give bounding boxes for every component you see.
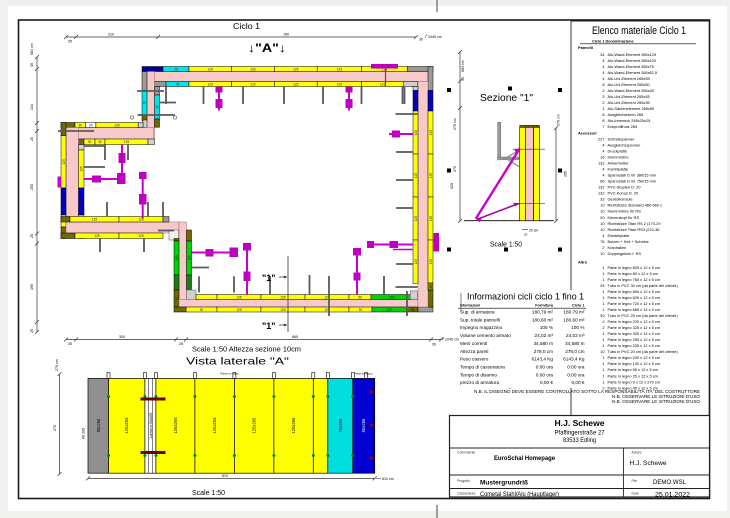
- svg-text:6143,4 Kg: 6143,4 Kg: [532, 357, 554, 362]
- svg-text:Ausgleichsspanner: Ausgleichsspanner: [608, 143, 642, 148]
- svg-text:1: 1: [602, 271, 604, 276]
- svg-text:Volume cemento armato: Volume cemento armato: [460, 333, 511, 338]
- svg-text:780: 780: [283, 33, 289, 37]
- svg-text:125: 125: [337, 82, 343, 86]
- svg-text:Lamiera 30x265: Lamiera 30x265: [149, 413, 153, 439]
- svg-text:24,02 m³: 24,02 m³: [535, 333, 554, 338]
- svg-text:180,79 m²: 180,79 m²: [563, 310, 585, 315]
- svg-text:195: 195: [30, 284, 34, 290]
- svg-text:100: 100: [429, 98, 433, 104]
- svg-text:0:00 ora: 0:00 ora: [567, 372, 585, 377]
- svg-text:0,00 €: 0,00 €: [571, 380, 584, 385]
- svg-text:270 cm: 270 cm: [557, 114, 561, 126]
- svg-text:55: 55: [411, 308, 415, 312]
- svg-text:125: 125: [414, 130, 418, 136]
- svg-text:125x265: 125x265: [291, 417, 296, 434]
- svg-text:125: 125: [337, 67, 343, 71]
- svg-text:DEMO.WSL: DEMO.WSL: [653, 479, 686, 486]
- svg-text:125: 125: [208, 67, 214, 71]
- svg-text:Alu-Uni-Element 265x50: Alu-Uni-Element 265x50: [608, 82, 651, 87]
- svg-text:Sup. totale pannelli: Sup. totale pannelli: [460, 317, 500, 322]
- svg-text:Parte in legno 130 x 12 x 5 cm: Parte in legno 130 x 12 x 5 cm: [608, 361, 661, 366]
- svg-text:629: 629: [450, 183, 454, 189]
- svg-text:810 cm: 810 cm: [382, 477, 394, 481]
- svg-text:125x265: 125x265: [252, 417, 257, 434]
- svg-text:Parte in legno 9 x 12 x 270 cm: Parte in legno 9 x 12 x 270 cm: [608, 379, 661, 384]
- svg-text:125x265: 125x265: [124, 417, 129, 434]
- svg-text:125: 125: [414, 173, 418, 179]
- svg-text:132: 132: [598, 191, 605, 196]
- svg-text:Alu-Uni-Element 265x35: Alu-Uni-Element 265x35: [608, 100, 650, 105]
- svg-text:0:00 ora: 0:00 ora: [536, 372, 554, 377]
- svg-text:Tubo in PVC 25 cm (da parte de: Tubo in PVC 25 cm (da parte del cliente): [608, 313, 679, 318]
- svg-text:Ciclo 1: Ciclo 1: [572, 304, 584, 308]
- svg-text:16: 16: [600, 155, 604, 160]
- svg-text:Tempo di disarmo: Tempo di disarmo: [460, 372, 497, 377]
- svg-text:Mustergrundriß: Mustergrundriß: [480, 480, 528, 487]
- svg-text:Vista laterale "A": Vista laterale "A": [186, 356, 289, 368]
- svg-text:180,60 m²: 180,60 m²: [563, 317, 585, 322]
- svg-text:25: 25: [89, 123, 93, 127]
- svg-text:"1": "1": [262, 321, 276, 331]
- svg-text:Tempo di casseratura: Tempo di casseratura: [460, 365, 505, 370]
- svg-text:684 cm: 684 cm: [461, 60, 465, 72]
- svg-text:Parte in legno 325 x 12 x 5 cm: Parte in legno 325 x 12 x 5 cm: [608, 325, 661, 330]
- svg-text:125: 125: [429, 259, 433, 265]
- svg-text:Impegno magazzino: Impegno magazzino: [460, 325, 503, 330]
- svg-text:1: 1: [602, 343, 604, 348]
- svg-text:2: 2: [602, 325, 604, 330]
- svg-text:EuroSchal Homepage: EuroSchal Homepage: [494, 456, 556, 462]
- svg-text:H.J. Schewe: H.J. Schewe: [555, 419, 606, 428]
- svg-text:270 cm: 270 cm: [453, 118, 457, 130]
- svg-text:125: 125: [236, 295, 242, 299]
- svg-text:25: 25: [30, 234, 34, 238]
- svg-text:Parte in legno 825 x 12 x 5 cm: Parte in legno 825 x 12 x 5 cm: [608, 265, 661, 270]
- svg-text:Scale 1:50 Altezza sezione 1: Scale 1:50 Altezza sezione 10cm: [192, 345, 301, 354]
- svg-text:278,0 cm: 278,0 cm: [565, 349, 584, 354]
- svg-text:278,0 cm: 278,0 cm: [534, 349, 553, 354]
- svg-text:Alu-Wand-Element 265x125: Alu-Wand-Element 265x125: [608, 52, 657, 57]
- svg-text:Richtstütze Titan RS 2 (170-29: Richtstütze Titan RS 2 (170-29: [608, 221, 661, 226]
- svg-text:270: 270: [53, 425, 57, 431]
- svg-text:20: 20: [30, 137, 34, 141]
- svg-text:25: 25: [68, 342, 72, 346]
- svg-text:Alt 265: Alt 265: [82, 428, 86, 439]
- svg-text:1: 1: [602, 277, 604, 282]
- svg-text:Bolzen + Keil + Scheibe: Bolzen + Keil + Scheibe: [608, 239, 649, 244]
- svg-text:2: 2: [602, 88, 604, 93]
- svg-text:1: 1: [602, 361, 604, 366]
- svg-text:6143,4 Kg: 6143,4 Kg: [563, 357, 585, 362]
- svg-text:50: 50: [358, 295, 362, 299]
- svg-text:60: 60: [62, 200, 66, 204]
- svg-text:Parte in legno 255 x 12 x 5 cm: Parte in legno 255 x 12 x 5 cm: [608, 337, 661, 342]
- svg-text:1: 1: [602, 367, 604, 372]
- svg-text:prezzo di armatura: prezzo di armatura: [460, 380, 499, 385]
- svg-text:134: 134: [30, 104, 34, 110]
- svg-text:Alu-Wand-Element 265x75: Alu-Wand-Element 265x75: [608, 64, 654, 69]
- svg-text:Richtstütze Titan RS3 (210-36: Richtstütze Titan RS3 (210-36: [608, 227, 660, 232]
- svg-text:Parte in legno 300 x 12 x 5 cm: Parte in legno 300 x 12 x 5 cm: [608, 331, 661, 336]
- svg-text:Alu-Säulenelement 265x50: Alu-Säulenelement 265x50: [608, 106, 656, 111]
- svg-text:125: 125: [414, 216, 418, 222]
- svg-text:125x265: 125x265: [173, 417, 178, 434]
- svg-text:30: 30: [419, 38, 423, 42]
- svg-text:125: 125: [380, 82, 386, 86]
- svg-text:Data: Data: [632, 492, 639, 496]
- svg-text:Einstellplatte: Einstellplatte: [608, 233, 630, 238]
- svg-text:Pfaffingerstraße 27: Pfaffingerstraße 27: [555, 430, 605, 437]
- svg-text:File: File: [632, 479, 638, 483]
- svg-text:Metri correnti: Metri correnti: [460, 341, 487, 346]
- svg-text:34,580 m: 34,580 m: [565, 341, 585, 346]
- svg-text:Cometal Stahl/Alu (Hauptlager): Cometal Stahl/Alu (Hauptlager): [480, 492, 559, 498]
- svg-text:Parte in legno 760 x 12 x 5 cm: Parte in legno 760 x 12 x 5 cm: [608, 277, 661, 282]
- svg-text:100: 100: [389, 295, 395, 299]
- svg-text:Parte in legno 25 x 12 x 5 cm: Parte in legno 25 x 12 x 5 cm: [608, 373, 658, 378]
- svg-text:Spannstab D.W. 750/15 mm: Spannstab D.W. 750/15 mm: [608, 179, 657, 184]
- svg-text:83533 Edling: 83533 Edling: [563, 437, 596, 444]
- svg-text:Richtstütze Standard 460-660 c: Richtstütze Standard 460-660 c: [608, 203, 663, 208]
- svg-text:Alu-Inneneck 265x25x25: Alu-Inneneck 265x25x25: [608, 118, 651, 123]
- svg-text:50: 50: [175, 297, 179, 301]
- svg-text:180,79 m²: 180,79 m²: [532, 310, 554, 315]
- svg-text:Tubo in PVC 30 cm (da parte de: Tubo in PVC 30 cm (da parte del cliente): [608, 283, 679, 288]
- svg-text:210: 210: [108, 33, 114, 37]
- svg-text:Alu-Wand-Element 265x100: Alu-Wand-Element 265x100: [608, 58, 657, 63]
- svg-text:Klemmkopf für RS: Klemmkopf für RS: [608, 215, 640, 220]
- svg-text:75x265: 75x265: [338, 418, 343, 432]
- svg-text:30: 30: [432, 343, 436, 347]
- svg-text:180,60 m²: 180,60 m²: [532, 317, 554, 322]
- svg-text:Parte in legno 230 x 12 x 5 cm: Parte in legno 230 x 12 x 5 cm: [608, 355, 661, 360]
- svg-text:2: 2: [602, 100, 604, 105]
- svg-text:1: 1: [602, 265, 604, 270]
- svg-text:30: 30: [461, 77, 465, 81]
- svg-text:125: 125: [250, 67, 256, 71]
- svg-text:Klemmröhre für RS: Klemmröhre für RS: [608, 209, 642, 214]
- svg-text:30: 30: [98, 140, 102, 144]
- svg-text:125: 125: [92, 218, 98, 222]
- svg-text:Kranhaken: Kranhaken: [608, 245, 627, 250]
- svg-text:1: 1: [602, 106, 604, 111]
- svg-text:Progetto: Progetto: [457, 479, 470, 483]
- svg-text:26: 26: [600, 283, 604, 288]
- svg-text:2: 2: [602, 319, 604, 324]
- svg-text:300: 300: [119, 335, 125, 339]
- svg-text:60: 60: [80, 200, 84, 204]
- svg-text:0,00 €: 0,00 €: [540, 380, 553, 385]
- svg-text:1: 1: [602, 355, 604, 360]
- svg-text:Druckplatte: Druckplatte: [608, 149, 628, 154]
- svg-text:30: 30: [88, 140, 92, 144]
- svg-text:Scale 1:50: Scale 1:50: [192, 488, 225, 497]
- svg-text:Accessori: Accessori: [578, 131, 597, 136]
- svg-text:75: 75: [143, 101, 147, 105]
- svg-text:1: 1: [602, 331, 604, 336]
- svg-text:Informazioni: Informazioni: [460, 304, 480, 308]
- svg-text:227: 227: [598, 137, 605, 142]
- svg-text:Parte in legno 694 x 12 x 5 cm: Parte in legno 694 x 12 x 5 cm: [608, 289, 661, 294]
- svg-text:Tubo in PVC 20 cm (da parte de: Tubo in PVC 20 cm (da parte del cliente): [608, 349, 679, 354]
- svg-text:125: 125: [280, 295, 286, 299]
- svg-text:"1": "1": [262, 273, 276, 283]
- svg-text:1: 1: [602, 295, 604, 300]
- svg-text:1: 1: [602, 373, 604, 378]
- svg-text:Doppelgelenk f. RS: Doppelgelenk f. RS: [608, 251, 642, 256]
- svg-text:24,02 m³: 24,02 m³: [566, 333, 585, 338]
- svg-text:Alu-Uni-Element 265x55: Alu-Uni-Element 265x55: [608, 76, 650, 81]
- svg-text:Parte in legno 720 x 12 x 5 cm: Parte in legno 720 x 12 x 5 cm: [608, 301, 661, 306]
- svg-text:100: 100: [387, 308, 393, 312]
- svg-text:1: 1: [602, 307, 604, 312]
- svg-text:50: 50: [359, 308, 363, 312]
- svg-text:Gerüstkonsole: Gerüstkonsole: [608, 197, 633, 202]
- svg-text:N.B. OSSERVARE LE ISTRUZIONI D: N.B. OSSERVARE LE ISTRUZIONI D'USO: [612, 399, 701, 404]
- svg-text:100: 100: [187, 255, 191, 261]
- svg-text:125: 125: [280, 308, 286, 312]
- svg-text:Parte in legno 629 x 12 x 5 cm: Parte in legno 629 x 12 x 5 cm: [608, 295, 661, 300]
- svg-text:125: 125: [62, 159, 66, 165]
- svg-text:810: 810: [222, 474, 228, 478]
- svg-text:Kombiplatte: Kombiplatte: [608, 167, 629, 172]
- svg-text:3: 3: [602, 94, 604, 99]
- svg-text:30: 30: [30, 63, 34, 67]
- svg-text:100: 100: [414, 98, 418, 104]
- svg-text:Informazioni cicli ciclo 1 fi: Informazioni cicli ciclo 1 fino 1: [467, 292, 584, 303]
- svg-text:Ciclo 1 Denominazione: Ciclo 1 Denominazione: [592, 40, 634, 44]
- svg-text:Parte in legno 220 x 12 x 5 cm: Parte in legno 220 x 12 x 5 cm: [608, 319, 661, 324]
- svg-text:270 cm: 270 cm: [55, 359, 59, 371]
- svg-text:Parte in legno 235 x 12 x 5 cm: Parte in legno 235 x 12 x 5 cm: [608, 343, 661, 348]
- svg-text:75: 75: [155, 105, 159, 109]
- svg-text:45: 45: [429, 285, 433, 289]
- svg-text:75: 75: [174, 67, 178, 71]
- svg-text:8: 8: [602, 118, 604, 123]
- svg-text:Parte in legno: Parte in legno: [354, 372, 373, 376]
- svg-text:Alu-Wand-Element 265x45: Alu-Wand-Element 265x45: [608, 88, 654, 93]
- svg-text:PVC-Stopfen D. 20: PVC-Stopfen D. 20: [608, 185, 642, 190]
- svg-text:33: 33: [600, 197, 604, 202]
- svg-text:1: 1: [602, 379, 604, 384]
- svg-text:100 %: 100 %: [540, 325, 553, 330]
- svg-text:Alu-Uni-Element 265x45: Alu-Uni-Element 265x45: [608, 94, 650, 99]
- svg-text:0:00 ora: 0:00 ora: [567, 365, 585, 370]
- svg-text:Schnellspanner: Schnellspanner: [608, 137, 636, 142]
- svg-text:8: 8: [602, 112, 604, 117]
- svg-text:125: 125: [80, 166, 84, 172]
- svg-text:Scale 1:50: Scale 1:50: [490, 240, 522, 249]
- svg-text:125: 125: [293, 82, 299, 86]
- svg-text:Parte in legno 665 x 12 x 5 cm: Parte in legno 665 x 12 x 5 cm: [608, 307, 661, 312]
- svg-text:125: 125: [293, 67, 299, 71]
- svg-text:30: 30: [79, 123, 83, 127]
- svg-text:1: 1: [602, 301, 604, 306]
- svg-text:2: 2: [602, 245, 604, 250]
- svg-text:255: 255: [30, 184, 34, 190]
- svg-text:Eckprofilholz 265: Eckprofilholz 265: [608, 124, 638, 129]
- svg-text:7: 7: [602, 124, 604, 129]
- svg-text:100: 100: [175, 255, 179, 261]
- svg-text:270: 270: [453, 166, 457, 172]
- svg-text:34,580 m: 34,580 m: [533, 341, 553, 346]
- svg-text:125x265: 125x265: [212, 417, 217, 434]
- svg-text:H.J. Schewe: H.J. Schewe: [630, 460, 667, 467]
- svg-text:125: 125: [414, 259, 418, 265]
- svg-text:132: 132: [598, 161, 605, 166]
- svg-text:125: 125: [208, 82, 214, 86]
- svg-text:66: 66: [600, 179, 604, 184]
- svg-text:Spannstab D.W. 380/15 mm: Spannstab D.W. 380/15 mm: [608, 173, 657, 178]
- svg-text:1: 1: [602, 289, 604, 294]
- svg-text:Commitente: Commitente: [457, 451, 475, 455]
- svg-text:125: 125: [124, 140, 130, 144]
- svg-text:125: 125: [429, 173, 433, 179]
- svg-text:100 %: 100 %: [571, 325, 584, 330]
- svg-text:Sezione "1": Sezione "1": [480, 92, 533, 104]
- svg-text:125: 125: [250, 82, 256, 86]
- svg-text:684 cm: 684 cm: [30, 43, 34, 55]
- svg-text:25.01.2022: 25.01.2022: [655, 492, 690, 499]
- svg-text:Klemmröhre: Klemmröhre: [608, 155, 629, 160]
- svg-text:↓"A"↓: ↓"A"↓: [248, 43, 286, 55]
- svg-text:25: 25: [68, 40, 72, 44]
- svg-text:Parte in legno 55 x 12 x 5 cm: Parte in legno 55 x 12 x 5 cm: [608, 367, 658, 372]
- svg-text:265: 265: [564, 171, 568, 177]
- svg-text:Altro: Altro: [578, 260, 588, 265]
- svg-text:50x265: 50x265: [361, 418, 366, 432]
- svg-text:Pannelli: Pannelli: [578, 45, 593, 50]
- svg-text:125: 125: [236, 308, 242, 312]
- svg-text:50: 50: [200, 308, 204, 312]
- svg-text:Formitura: Formitura: [535, 304, 554, 308]
- svg-text:132: 132: [598, 185, 605, 190]
- svg-text:25: 25: [179, 342, 183, 346]
- svg-text:865: 865: [292, 335, 298, 339]
- svg-text:Casseratura: Casseratura: [457, 492, 476, 496]
- svg-text:125: 125: [429, 130, 433, 136]
- svg-text:Ausgleichsblech 265: Ausgleichsblech 265: [608, 112, 644, 117]
- svg-text:125: 125: [94, 234, 100, 238]
- svg-text:1045 cm: 1045 cm: [428, 35, 442, 39]
- svg-text:25: 25: [30, 329, 34, 333]
- svg-text:Parte in legno: Parte in legno: [220, 372, 239, 376]
- svg-text:125: 125: [429, 216, 433, 222]
- svg-text:55x265: 55x265: [96, 418, 101, 432]
- svg-text:Altezza pareti: Altezza pareti: [460, 349, 488, 354]
- svg-text:Peso cassero: Peso cassero: [460, 357, 489, 362]
- svg-text:Elenco materiale Ciclo 1: Elenco materiale Ciclo 1: [592, 25, 686, 37]
- svg-text:76: 76: [600, 239, 604, 244]
- svg-text:Alu-Wand-Element 265x62,5: Alu-Wand-Element 265x62,5: [608, 70, 658, 75]
- svg-text:PVC-Konus D. 20: PVC-Konus D. 20: [608, 191, 640, 196]
- svg-text:25: 25: [524, 233, 528, 237]
- svg-text:0:00 ora: 0:00 ora: [536, 365, 554, 370]
- svg-text:125: 125: [138, 234, 144, 238]
- svg-text:8: 8: [602, 82, 604, 87]
- svg-text:75: 75: [176, 82, 180, 86]
- svg-text:Parte in legno 80 x 12 x 5 cm: Parte in legno 80 x 12 x 5 cm: [608, 271, 658, 276]
- svg-text:125: 125: [114, 123, 120, 127]
- svg-text:Sup. di armatura: Sup. di armatura: [460, 310, 495, 315]
- svg-text:Ankermutter: Ankermutter: [608, 161, 630, 166]
- svg-text:Autore: Autore: [632, 451, 642, 455]
- svg-text:25 cm: 25 cm: [529, 229, 538, 233]
- svg-text:1045 cm: 1045 cm: [445, 338, 459, 342]
- svg-text:1: 1: [602, 337, 604, 342]
- svg-text:Ciclo 1: Ciclo 1: [233, 21, 260, 31]
- svg-text:125: 125: [138, 218, 144, 222]
